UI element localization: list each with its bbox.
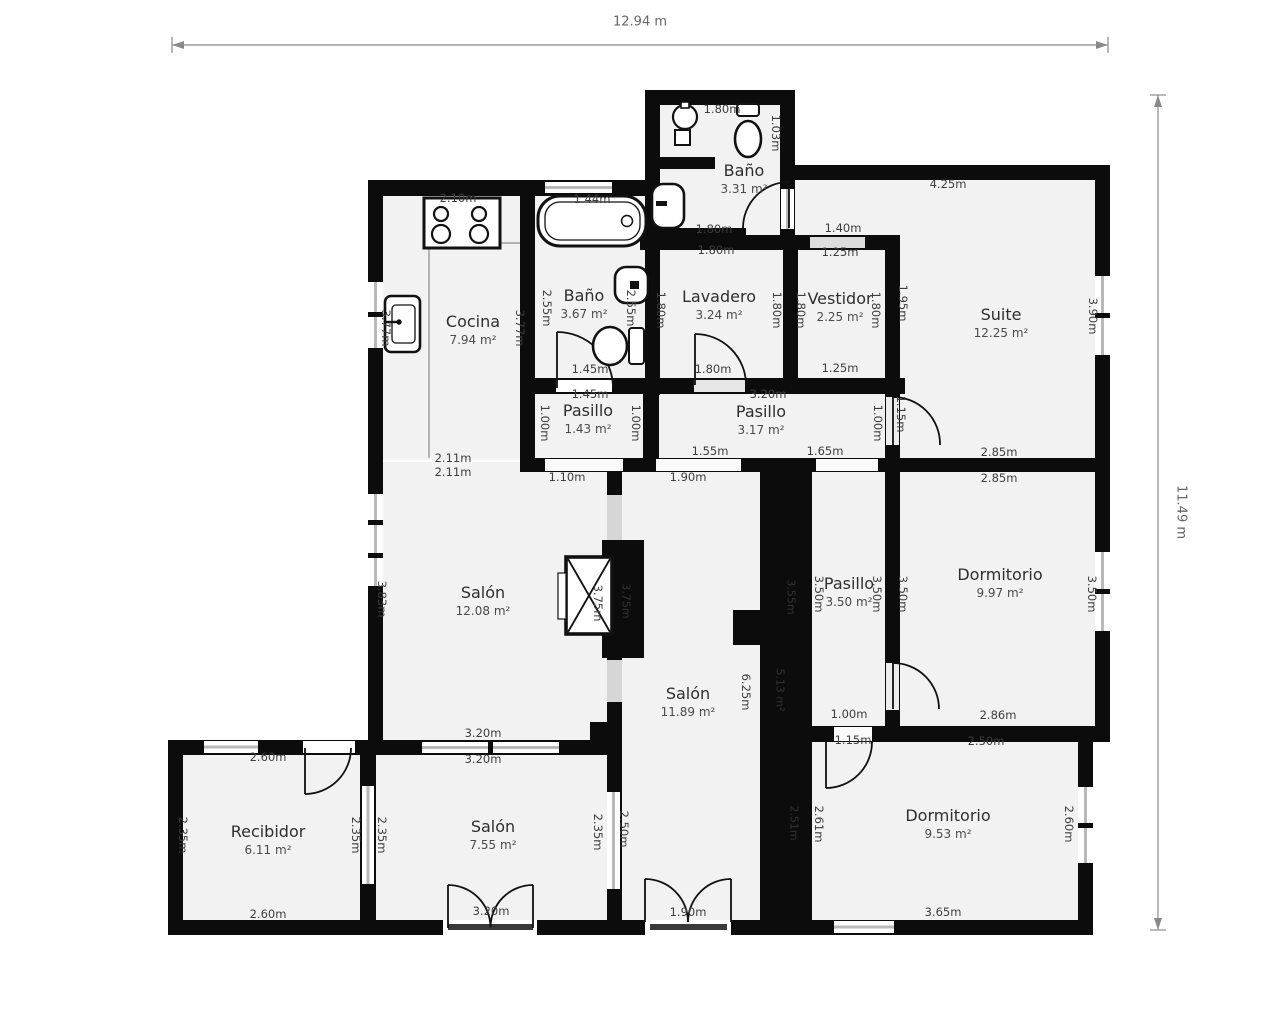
opening-pasillo-salon [545, 459, 623, 471]
wall [168, 740, 183, 935]
floor-pasillo-350 [812, 472, 885, 726]
wall [520, 195, 535, 462]
bathtub-icon [538, 196, 646, 246]
wall [368, 180, 383, 755]
toilet-icon [735, 104, 761, 157]
window [418, 742, 563, 753]
wall [645, 157, 715, 169]
floor-recibidor [183, 755, 360, 920]
window [607, 788, 620, 893]
doorway-recibidor [303, 741, 355, 753]
arrow-up-icon [1154, 95, 1162, 107]
floor-plan-page: Cocina7.94 m²Baño3.67 m²Baño3.31 m²Lavad… [0, 0, 1280, 1024]
kitchen-sink-icon [385, 296, 420, 352]
doorway-lavadero [694, 380, 745, 392]
window [541, 182, 616, 193]
floor-salon-755 [376, 742, 607, 920]
window [781, 185, 794, 233]
opening-pasillo-pasillo [816, 459, 878, 471]
arrow-left-icon [172, 41, 184, 49]
wall-opening [607, 495, 622, 540]
floor-salon-1189 [622, 472, 760, 920]
window [368, 278, 383, 352]
overall-height-label: 11.49 m [1174, 485, 1189, 539]
floor-suite [900, 180, 1095, 462]
wall [645, 90, 795, 105]
opening-pasillo-salon [656, 459, 741, 471]
wall [733, 610, 762, 645]
wall-shaft [760, 460, 812, 935]
window [830, 921, 898, 933]
wall [168, 920, 622, 935]
door-sill [650, 924, 727, 930]
wall [760, 726, 1110, 742]
wall [1093, 726, 1110, 742]
elevator-icon [558, 557, 612, 634]
doorway-bano [556, 380, 612, 392]
window [1095, 272, 1110, 359]
floor-pasillo-143 [535, 392, 643, 460]
floor-lavadero [660, 250, 783, 380]
window [1078, 783, 1093, 867]
bidet-icon [615, 267, 648, 303]
floor-dormitorio-997 [900, 472, 1095, 726]
window [368, 490, 383, 590]
floor-pasillo-317 [659, 392, 885, 460]
wall [1095, 165, 1110, 742]
toilet-icon [593, 327, 644, 365]
floor-dormitorio-953 [812, 742, 1078, 920]
window [1095, 548, 1110, 635]
wall [368, 180, 660, 196]
doorway-dormitorio [834, 727, 872, 741]
wall [780, 165, 1110, 180]
stove-icon [424, 198, 500, 248]
opening-vestidor [810, 237, 865, 248]
arrow-down-icon [1154, 918, 1162, 930]
wall-opening [607, 660, 622, 702]
window [362, 782, 374, 888]
shower-tray-icon [675, 130, 690, 145]
wall [783, 250, 798, 390]
wall [643, 388, 659, 462]
overall-width-label: 12.94 m [613, 15, 667, 30]
floor-plan-drawing [0, 0, 1280, 1024]
wall [590, 722, 608, 752]
floor-vestidor [798, 250, 885, 380]
arrow-right-icon [1096, 41, 1108, 49]
window [200, 741, 262, 753]
bidet-icon [652, 184, 684, 228]
